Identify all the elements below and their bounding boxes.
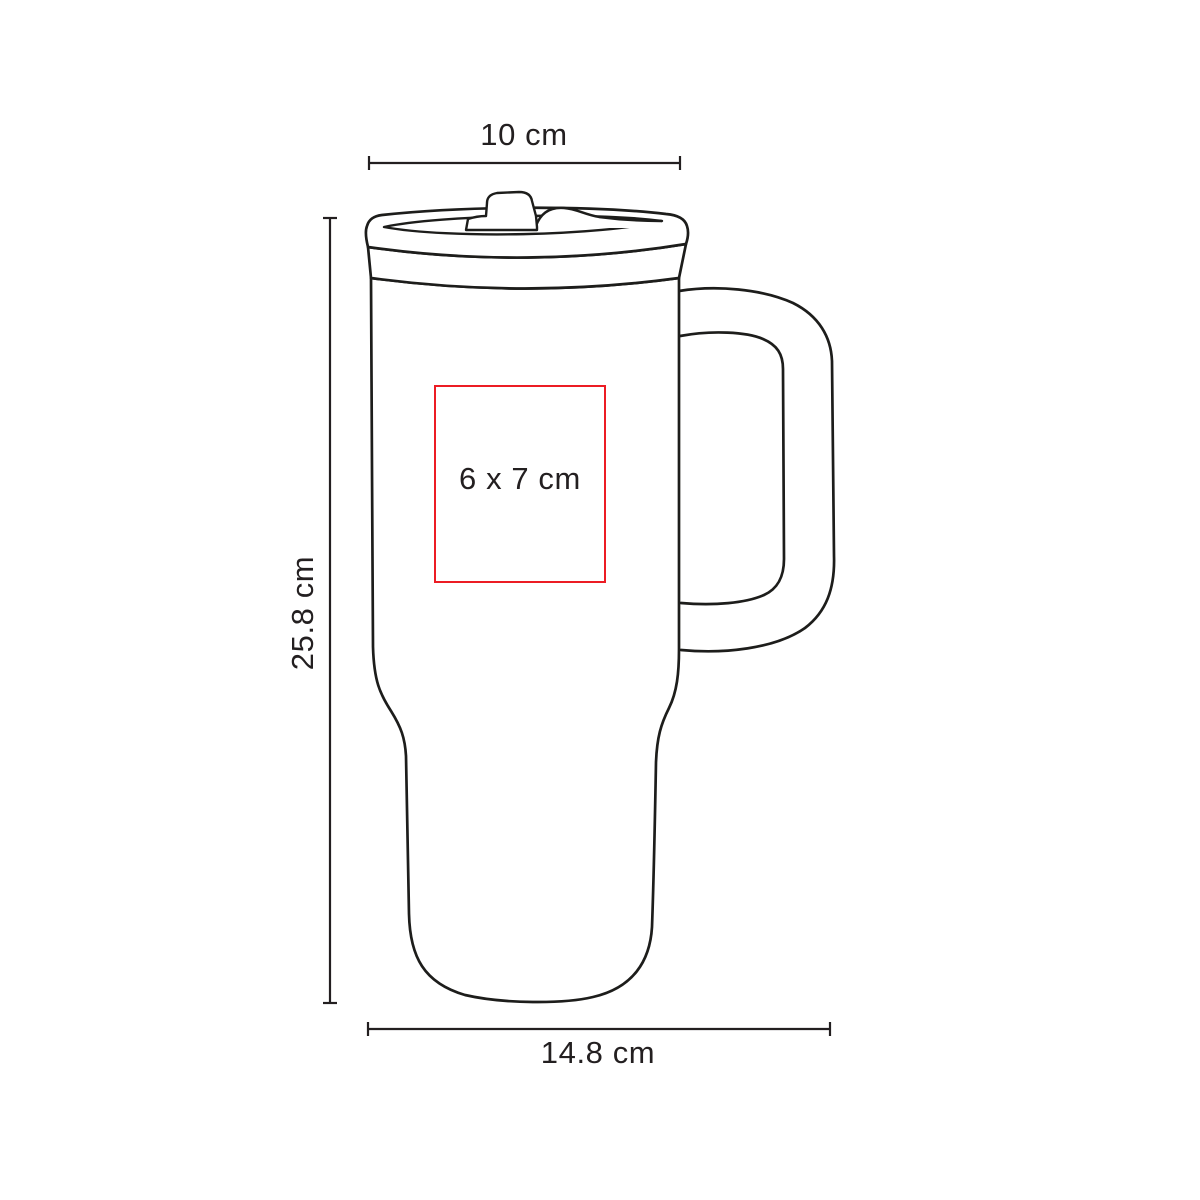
dimension-label-height: 25.8 cm bbox=[285, 556, 321, 670]
dimension-line-top-width bbox=[369, 156, 680, 170]
product-dimension-diagram: 6 x 7 cm 10 cm 25.8 cm 14.8 cm bbox=[0, 0, 1200, 1200]
mug-line-drawing bbox=[0, 0, 1200, 1200]
dimension-line-bottom-width bbox=[368, 1022, 830, 1036]
imprint-area-box: 6 x 7 cm bbox=[434, 385, 606, 583]
dimension-label-top-width: 10 cm bbox=[480, 117, 567, 153]
dimension-label-bottom-width: 14.8 cm bbox=[541, 1035, 655, 1071]
dimension-line-height bbox=[323, 218, 337, 1003]
mug-handle bbox=[679, 288, 834, 651]
imprint-area-label: 6 x 7 cm bbox=[459, 461, 581, 497]
